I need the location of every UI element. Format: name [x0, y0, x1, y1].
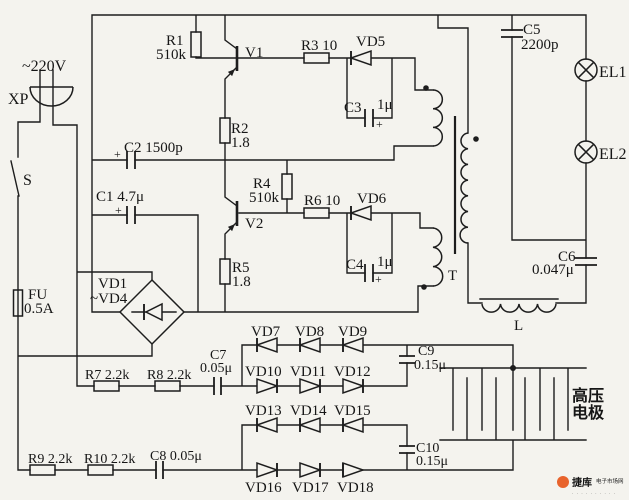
resistor-r1: [191, 32, 201, 57]
watermark: 捷库 电子市场网 · · · · · · · · · ·: [557, 476, 624, 496]
capacitor-c10: [399, 446, 415, 453]
label-bridge-line2: ~VD4: [90, 291, 128, 307]
label-vd11: VD11: [290, 364, 326, 380]
junction-dot: [510, 365, 516, 371]
label-c5-value: 2200p: [521, 37, 559, 53]
label-vd12: VD12: [334, 364, 371, 380]
label-c9: C9: [418, 344, 434, 359]
label-vd17: VD17: [292, 480, 329, 496]
capacitor-c7: [214, 377, 221, 395]
lamp-el1: [575, 59, 597, 81]
inductor-l: [482, 304, 556, 312]
watermark-caption: 电子市场网: [596, 477, 624, 485]
capacitor-c4: [365, 264, 373, 282]
label-mains-voltage: ~220V: [22, 58, 67, 75]
watermark-brand: 捷库: [572, 476, 592, 489]
label-vd13: VD13: [245, 403, 282, 419]
label-r2-value: 1.8: [231, 135, 250, 151]
diode-row-vd13-vd15: [257, 418, 363, 432]
label-c3-value: 1μ: [377, 97, 393, 113]
plug-xp-symbol: [30, 87, 73, 106]
label-r6: R6 10: [304, 193, 340, 209]
capacitor-c1: [127, 206, 135, 224]
label-c8: C8 0.05μ: [150, 449, 202, 464]
label-r5-value: 1.8: [232, 274, 251, 290]
label-c2: C2 1500p: [124, 140, 183, 156]
label-vd5: VD5: [356, 34, 385, 50]
label-r3: R3 10: [301, 38, 337, 54]
label-plug-xp: XP: [8, 91, 29, 108]
label-vd14: VD14: [290, 403, 327, 419]
label-r8: R8 2.2k: [147, 368, 191, 383]
label-transformer-t: T: [448, 268, 457, 284]
watermark-logo-icon: [557, 476, 569, 488]
label-bridge-line1: VD1: [98, 276, 127, 292]
label-inductor-l: L: [514, 318, 523, 334]
label-c3-plus: +: [376, 117, 383, 131]
label-c6-value: 0.047μ: [532, 262, 574, 278]
diode-row-vd16-vd18: [257, 463, 363, 477]
label-c10-value: 0.15μ: [416, 454, 448, 469]
watermark-fineprint: · · · · · · · · · ·: [572, 491, 616, 496]
capacitor-c5: [501, 30, 523, 37]
label-vd16: VD16: [245, 480, 282, 496]
label-c4-value: 1μ: [377, 254, 393, 270]
label-c2-plus: +: [114, 147, 121, 161]
label-c5: C5: [523, 22, 541, 38]
resistor-r5: [220, 259, 230, 284]
label-electrode-line1: 高压: [572, 386, 604, 405]
label-r7: R7 2.2k: [85, 368, 129, 383]
diode-vd5: [351, 51, 371, 65]
label-c4: C4: [346, 257, 364, 273]
label-r9: R9 2.2k: [28, 452, 72, 467]
label-v1: V1: [245, 45, 263, 61]
schematic-page: ~220V XP S FU 0.5A R1 510k V1 R3 10 VD5 …: [0, 0, 629, 500]
label-vd7: VD7: [251, 324, 281, 340]
label-c7-value: 0.05μ: [200, 361, 232, 376]
label-r4-value: 510k: [249, 190, 280, 206]
circuit-schematic: ~220V XP S FU 0.5A R1 510k V1 R3 10 VD5 …: [0, 0, 629, 500]
transistor-v1: [228, 46, 237, 76]
label-vd9: VD9: [338, 324, 367, 340]
resistor-r6: [304, 208, 329, 218]
label-vd10: VD10: [245, 364, 282, 380]
wires: [11, 15, 586, 470]
capacitor-c9: [399, 356, 415, 363]
label-c9-value: 0.15μ: [414, 358, 446, 373]
label-switch-s: S: [23, 172, 32, 189]
label-c1-plus: +: [115, 203, 122, 217]
diode-row-vd7-vd9: [257, 338, 363, 352]
label-vd6: VD6: [357, 191, 387, 207]
label-v2: V2: [245, 216, 263, 232]
label-el1: EL1: [599, 64, 627, 81]
capacitor-c6: [575, 258, 597, 265]
label-electrode-line2: 电极: [572, 403, 605, 422]
label-vd8: VD8: [295, 324, 324, 340]
label-el2: EL2: [599, 146, 627, 163]
label-r1-value: 510k: [156, 47, 187, 63]
label-fuse-rating: 0.5A: [24, 301, 54, 317]
label-r10: R10 2.2k: [84, 452, 135, 467]
resistor-r3: [304, 53, 329, 63]
transformer-t: [421, 85, 479, 290]
resistor-r4: [282, 174, 292, 199]
label-vd18: VD18: [337, 480, 374, 496]
diode-row-vd10-vd12: [257, 379, 363, 393]
capacitor-c3: [365, 109, 373, 127]
resistor-r2: [220, 118, 230, 143]
label-c4-plus: +: [375, 272, 382, 286]
lamp-el2: [575, 141, 597, 163]
label-vd15: VD15: [334, 403, 371, 419]
label-c3: C3: [344, 100, 362, 116]
diode-vd6: [351, 206, 371, 220]
